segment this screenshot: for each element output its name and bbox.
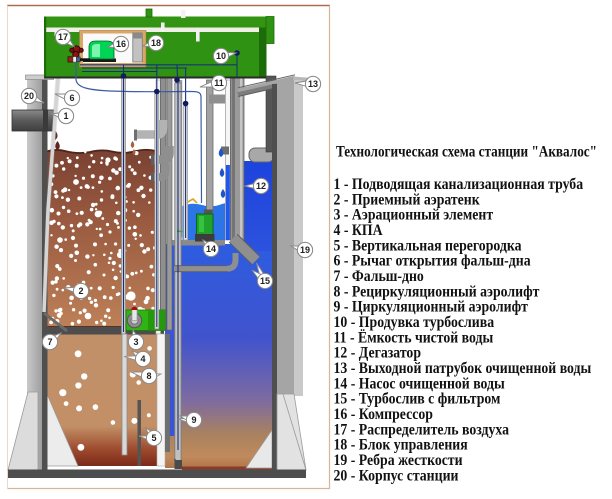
svg-text:2: 2 (78, 286, 83, 296)
svg-text:5: 5 (151, 433, 156, 443)
svg-text:20 - Корпус станции: 20 - Корпус станции (334, 467, 459, 484)
svg-text:4: 4 (140, 354, 145, 364)
svg-text:13: 13 (308, 79, 318, 89)
svg-text:20: 20 (24, 91, 34, 101)
svg-text:11: 11 (214, 78, 224, 88)
svg-text:10: 10 (216, 51, 226, 61)
svg-text:3: 3 (133, 337, 138, 347)
svg-text:1: 1 (63, 111, 68, 121)
svg-text:18: 18 (151, 38, 161, 48)
svg-text:8: 8 (146, 371, 151, 381)
svg-text:17: 17 (58, 32, 68, 42)
svg-text:9: 9 (191, 415, 196, 425)
svg-text:15: 15 (260, 276, 270, 286)
svg-text:14: 14 (206, 244, 216, 254)
svg-text:12: 12 (256, 181, 266, 191)
svg-text:19: 19 (300, 245, 310, 255)
svg-text:Технологическая схема станции: Технологическая схема станции "Аквалос" (336, 144, 597, 161)
svg-text:7: 7 (47, 337, 52, 347)
svg-text:6: 6 (69, 93, 74, 103)
svg-text:16: 16 (116, 39, 126, 49)
